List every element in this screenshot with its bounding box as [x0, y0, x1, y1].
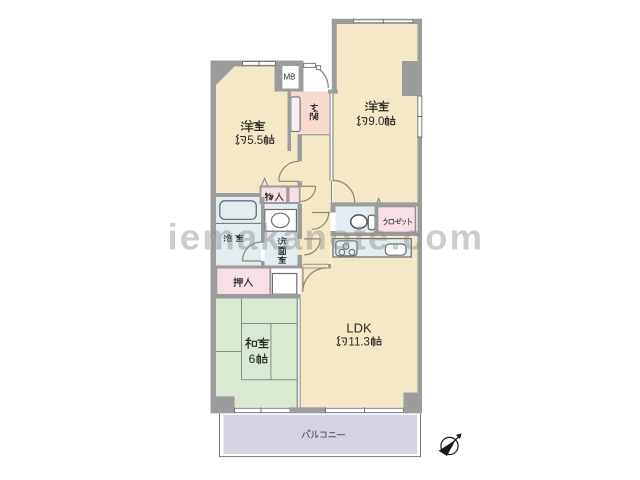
- svg-text:LDK: LDK: [346, 320, 372, 335]
- svg-text:MB: MB: [284, 72, 296, 81]
- svg-text:9.0: 9.0: [368, 116, 384, 128]
- svg-text:iemakanote.com: iemakanote.com: [168, 217, 485, 258]
- svg-text:6: 6: [249, 352, 256, 366]
- svg-text:11.3: 11.3: [348, 336, 370, 348]
- svg-text:5.5: 5.5: [247, 135, 263, 147]
